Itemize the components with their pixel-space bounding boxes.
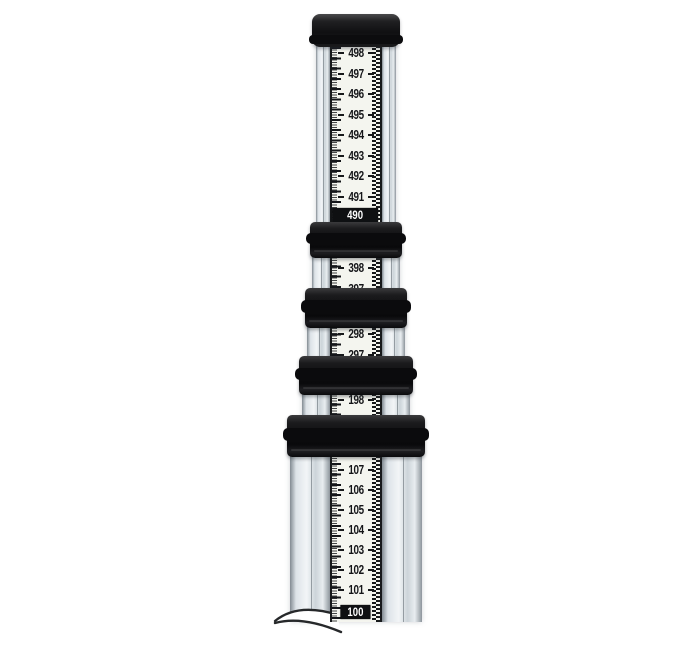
number-dash-left — [338, 267, 344, 269]
number-dash-left — [338, 489, 344, 491]
product-photo: 4984974964954944934924914903983972982971… — [0, 0, 700, 654]
number-dash-left — [338, 529, 344, 531]
scale-number-text: 104 — [348, 523, 363, 537]
scale-number-text: 495 — [348, 108, 363, 122]
scale-number: 102 — [332, 563, 380, 577]
clamp-collar-1 — [310, 222, 402, 258]
scale-number: 491 — [332, 190, 380, 204]
scale-number: 494 — [332, 128, 380, 142]
scale-number-text: 102 — [348, 563, 363, 577]
number-dash-right — [368, 529, 374, 531]
number-dash-left — [338, 134, 344, 136]
number-dash-right — [368, 399, 374, 401]
scale-number: 492 — [332, 169, 380, 183]
scale-number-text: 103 — [348, 543, 363, 557]
scale-number: 498 — [332, 46, 380, 60]
number-dash-right — [368, 114, 374, 116]
number-dash-right — [368, 175, 374, 177]
inverted-number-text: 100 — [347, 605, 363, 619]
scale-number: 398 — [332, 261, 380, 275]
scale-number-text: 492 — [348, 169, 363, 183]
scale-number: 496 — [332, 87, 380, 101]
number-dash-right — [368, 196, 374, 198]
number-dash-left — [338, 155, 344, 157]
scale-number: 495 — [332, 108, 380, 122]
scale-number: 103 — [332, 543, 380, 557]
scale-number-text: 498 — [348, 46, 363, 60]
clamp-collar-2 — [305, 288, 407, 328]
number-dash-right — [368, 549, 374, 551]
number-dash-left — [338, 569, 344, 571]
number-dash-right — [368, 155, 374, 157]
scale-number-text: 398 — [348, 261, 363, 275]
clamp-collar-4 — [287, 415, 425, 457]
scale-number: 107 — [332, 463, 380, 477]
scale-number-text: 493 — [348, 149, 363, 163]
number-dash-left — [338, 589, 344, 591]
number-dash-right — [368, 52, 374, 54]
top-cap — [312, 14, 400, 47]
scale-number: 497 — [332, 67, 380, 81]
number-dash-left — [338, 549, 344, 551]
scale-number-text: 494 — [348, 128, 363, 142]
number-dash-right — [368, 333, 374, 335]
inverted-number-badge: 100 — [340, 605, 370, 619]
number-dash-left — [338, 333, 344, 335]
number-dash-left — [338, 399, 344, 401]
scale-number: 298 — [332, 327, 380, 341]
scale-strip: 107106105104103102101100 — [330, 448, 382, 622]
scale-number: 106 — [332, 483, 380, 497]
scale-number-text: 298 — [348, 327, 363, 341]
number-dash-left — [338, 93, 344, 95]
number-dash-right — [368, 569, 374, 571]
number-dash-right — [368, 509, 374, 511]
clamp-collar-3 — [299, 356, 413, 395]
scale-number-text: 497 — [348, 67, 363, 81]
number-dash-left — [338, 73, 344, 75]
number-dash-right — [368, 469, 374, 471]
number-dash-left — [338, 509, 344, 511]
rail-left — [290, 448, 330, 622]
crescent-lower-edge — [275, 621, 341, 632]
inverted-number-badge: 490 — [332, 208, 378, 222]
rod-section-100s: 107106105104103102101100 — [290, 448, 422, 622]
inverted-number-text: 490 — [347, 208, 363, 222]
scale-number-text: 101 — [348, 583, 363, 597]
scale-number: 101 — [332, 583, 380, 597]
scale-number-text: 106 — [348, 483, 363, 497]
number-dash-right — [368, 93, 374, 95]
scale-number: 105 — [332, 503, 380, 517]
scale-number-text: 198 — [348, 393, 363, 407]
scale-number-text: 496 — [348, 87, 363, 101]
number-dash-right — [368, 134, 374, 136]
number-dash-left — [338, 114, 344, 116]
number-dash-right — [368, 267, 374, 269]
scale-number: 493 — [332, 149, 380, 163]
number-dash-left — [338, 469, 344, 471]
scale-number: 104 — [332, 523, 380, 537]
rail-right — [382, 448, 422, 622]
number-dash-left — [338, 175, 344, 177]
number-dash-left — [338, 196, 344, 198]
scale-number-text: 107 — [348, 463, 363, 477]
number-dash-right — [368, 73, 374, 75]
number-dash-left — [338, 52, 344, 54]
number-dash-right — [368, 489, 374, 491]
number-dash-right — [368, 589, 374, 591]
scale-number-text: 105 — [348, 503, 363, 517]
scale-number-text: 491 — [348, 190, 363, 204]
scale-number: 198 — [332, 393, 380, 407]
